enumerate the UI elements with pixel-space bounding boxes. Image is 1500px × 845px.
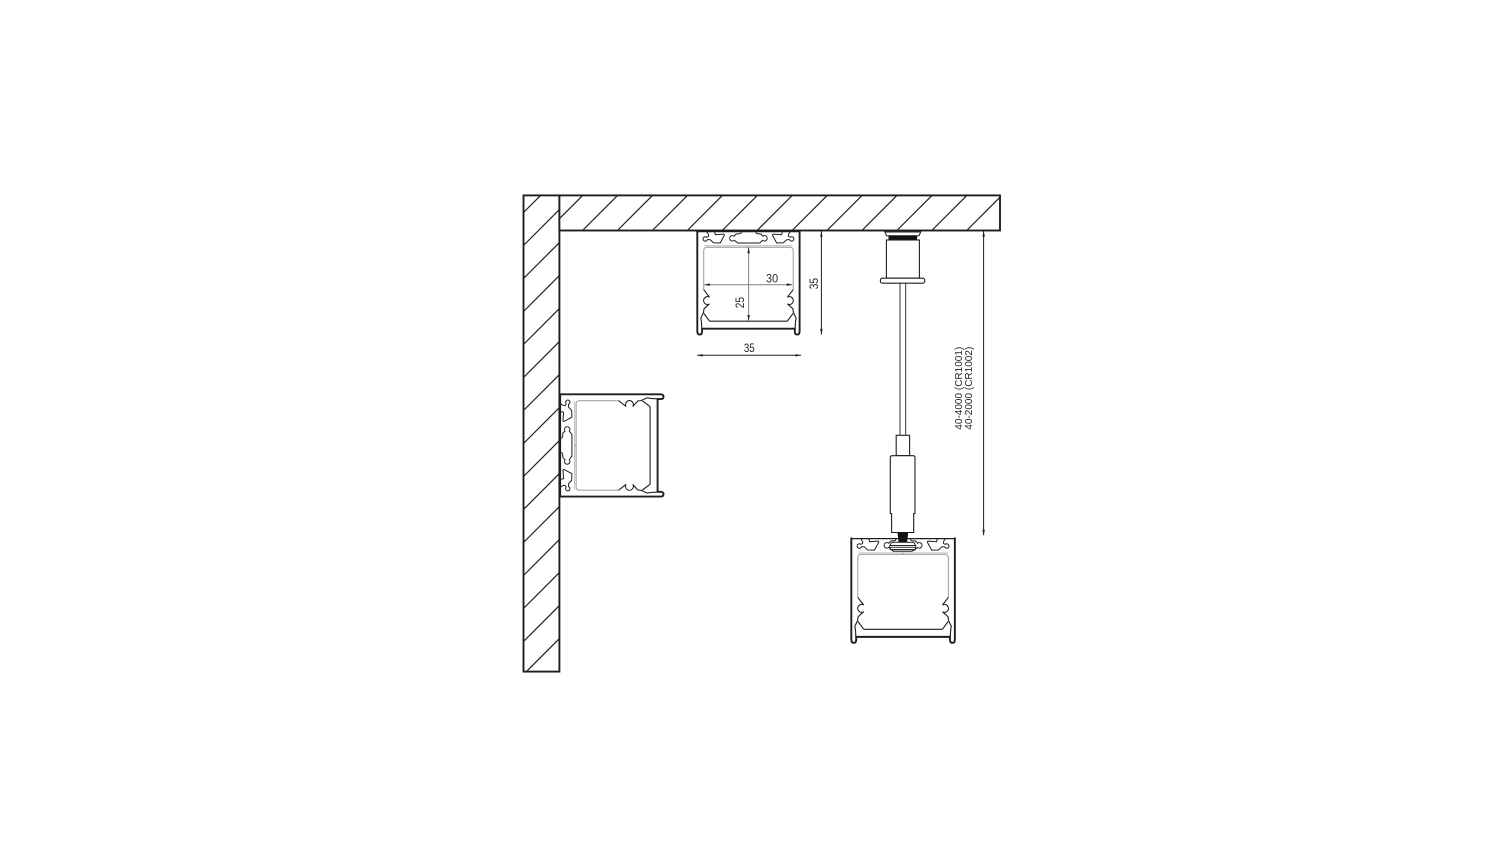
svg-text:30: 30 [766,272,778,286]
svg-text:25: 25 [733,297,747,309]
svg-text:35: 35 [744,341,755,355]
svg-text:40-2000 (CR1002): 40-2000 (CR1002) [964,347,975,430]
svg-text:35: 35 [807,278,821,290]
